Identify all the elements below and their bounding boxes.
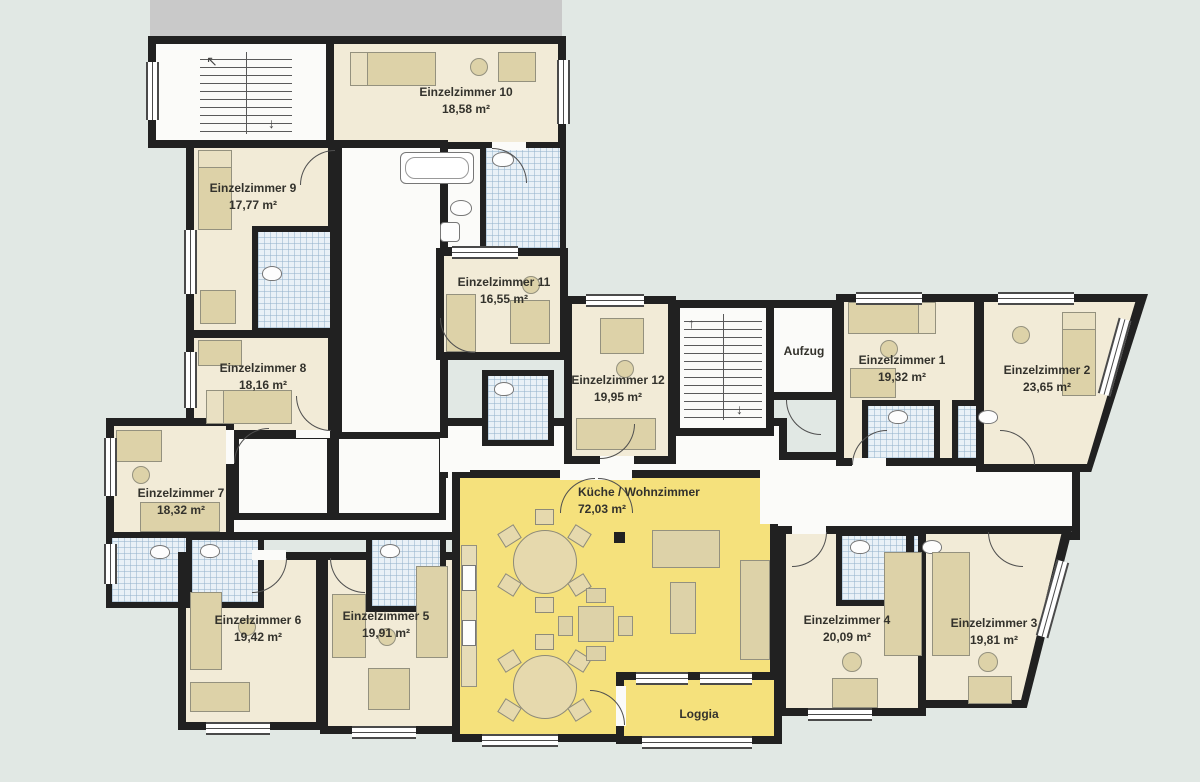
stairs-divider [723,314,724,420]
stairs-divider [246,52,247,134]
label-einzelzimmer-6: Einzelzimmer 6 19,42 m² [215,612,302,647]
label-einzelzimmer-5: Einzelzimmer 5 19,91 m² [343,608,430,643]
bathtub [400,152,474,184]
room-name: Einzelzimmer 9 [210,181,297,195]
room-area: 19,42 m² [234,630,282,644]
stairs-up-arrow-icon: ↑ [688,316,695,330]
stove [462,620,476,646]
room-name: Einzelzimmer 6 [215,613,302,627]
label-einzelzimmer-11: Einzelzimmer 11 16,55 m² [458,274,551,309]
room-name: Küche / Wohnzimmer [578,485,700,499]
window [352,726,416,739]
storage-room-b [332,432,446,520]
desk [368,668,410,710]
room-name: Einzelzimmer 7 [138,486,225,500]
room-name: Einzelzimmer 1 [859,353,946,367]
pillow [1062,312,1096,330]
bathroom-einzelzimmer-9 [252,226,336,334]
chair [978,652,998,672]
desk [968,676,1012,704]
desk [200,290,236,324]
room-area: 19,91 m² [362,626,410,640]
label-loggia: Loggia [679,706,718,723]
window [998,292,1074,305]
room-area: 23,65 m² [1023,380,1071,394]
room-name: Einzelzimmer 8 [220,361,307,375]
adjacent-building-block [150,0,562,36]
stairs-mid [684,314,762,420]
window [636,672,688,685]
room-name: Aufzug [784,344,825,358]
chair [535,509,554,525]
sofa-vertical [740,560,770,660]
chair [586,646,606,661]
window [586,294,644,307]
window [856,292,922,305]
room-name: Einzelzimmer 3 [951,616,1038,630]
kitchen-sink [462,565,476,591]
room-area: 18,16 m² [239,378,287,392]
window [557,60,570,124]
passage [350,460,430,476]
chair [586,588,606,603]
door-aufzug [786,400,821,435]
chair [558,616,573,636]
room-area: 18,58 m² [442,102,490,116]
window [452,246,518,259]
sofa [652,530,720,568]
room-name: Einzelzimmer 11 [458,275,551,289]
pillow [198,150,232,168]
room-area: 19,81 m² [970,633,1018,647]
room-name: Einzelzimmer 4 [804,613,891,627]
room-area: 72,03 m² [578,502,626,516]
window [184,230,197,294]
passage [440,438,470,472]
chair [535,634,554,650]
chair [470,58,488,76]
window [104,544,117,584]
window [206,722,270,735]
washer [440,222,460,242]
stairs-down-arrow-icon: ↓ [268,116,275,130]
window [642,736,752,749]
label-einzelzimmer-4: Einzelzimmer 4 20,09 m² [804,612,891,647]
label-einzelzimmer-12: Einzelzimmer 12 19,95 m² [571,372,664,407]
label-aufzug: Aufzug [784,343,825,360]
toilet [150,545,170,559]
label-einzelzimmer-1: Einzelzimmer 1 19,32 m² [859,352,946,387]
window [146,62,159,120]
toilet [978,410,998,424]
dining-table-round-1 [488,505,600,617]
room-name: Loggia [679,707,718,721]
door-gap [560,470,632,480]
room-area: 17,77 m² [229,198,277,212]
armchair [670,582,696,634]
room-area: 19,95 m² [594,390,642,404]
toilet [888,410,908,424]
window [104,438,117,496]
door-gap [296,430,330,438]
floor-plan: ↖ ↓ ↑ ↓ [0,0,1200,782]
label-einzelzimmer-9: Einzelzimmer 9 17,77 m² [210,180,297,215]
label-einzelzimmer-10: Einzelzimmer 10 18,58 m² [419,84,512,119]
sink [450,200,472,216]
table-square [578,606,614,642]
pillar [614,532,625,543]
dining-table-round-2 [488,630,600,742]
desk [116,430,162,462]
toilet [850,540,870,554]
toilet [380,544,400,558]
window [700,672,752,685]
label-einzelzimmer-2: Einzelzimmer 2 23,65 m² [1004,362,1091,397]
label-einzelzimmer-7: Einzelzimmer 7 18,32 m² [138,485,225,520]
room-name: Einzelzimmer 10 [419,85,512,99]
window [482,734,558,747]
room-name: Einzelzimmer 12 [571,373,664,387]
pillow [206,390,224,424]
pillow [918,302,936,334]
window [184,352,197,408]
chair [132,466,150,484]
chair [842,652,862,672]
room-area: 16,55 m² [480,292,528,306]
desk [832,678,878,708]
chair [618,616,633,636]
room-area: 18,32 m² [157,503,205,517]
bathroom-einzelzimmer-11 [482,370,554,446]
window [808,708,872,721]
bathtub-inner [405,157,469,179]
toilet [494,382,514,396]
room-name: Einzelzimmer 2 [1004,363,1091,377]
room-name: Einzelzimmer 5 [343,609,430,623]
desk [600,318,644,354]
stairs-down-arrow-icon: ↓ [736,402,743,416]
pillow [350,52,368,86]
sideboard [190,682,250,712]
stairs-up-arrow-icon: ↖ [206,54,218,68]
passage [760,466,784,524]
label-kueche-wohnzimmer: Küche / Wohnzimmer 72,03 m² [578,484,700,519]
room-area: 19,32 m² [878,370,926,384]
label-einzelzimmer-3: Einzelzimmer 3 19,81 m² [951,615,1038,650]
chair [535,597,554,613]
chair [1012,326,1030,344]
desk [498,52,536,82]
corridor-vertical [334,140,448,478]
toilet [200,544,220,558]
door-gap [226,430,234,464]
label-einzelzimmer-8: Einzelzimmer 8 18,16 m² [220,360,307,395]
toilet [262,266,282,281]
room-area: 20,09 m² [823,630,871,644]
